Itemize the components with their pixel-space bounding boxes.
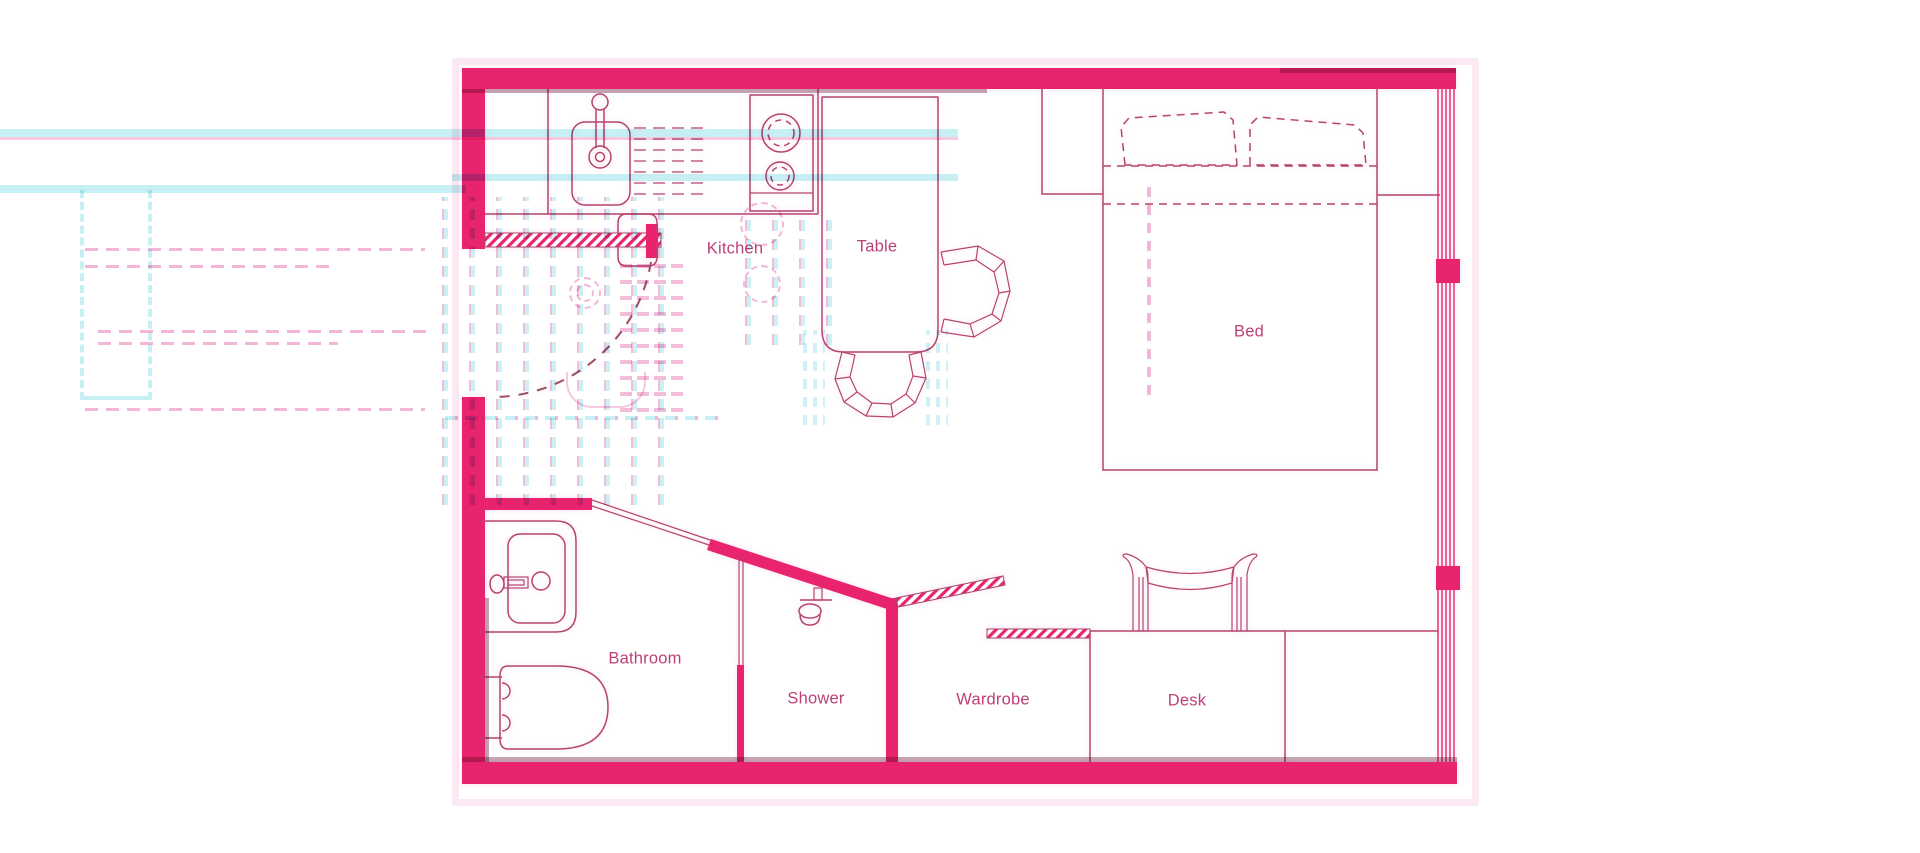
bed-icon: [1103, 88, 1377, 470]
stove-icon: [750, 95, 813, 211]
wardrobe-door-icon: [896, 576, 1005, 607]
wardrobe-door-icon: [987, 629, 1090, 638]
floor-plan-drawing: [0, 0, 1920, 853]
room-label-table: Table: [857, 238, 897, 257]
entry-door-icon: [485, 214, 661, 266]
window-wall-icon: [1436, 89, 1460, 762]
shower-head-icon: [799, 588, 832, 625]
desk-chair-icon: [1123, 554, 1257, 631]
chair-icon: [835, 352, 926, 417]
desk-icon: [1090, 631, 1438, 762]
room-label-desk: Desk: [1168, 692, 1206, 711]
door-swing-arc-icon: [497, 262, 651, 397]
nightstand-niche: [1042, 89, 1103, 194]
kitchen-counter: [485, 89, 818, 214]
dining-table-icon: [822, 97, 938, 352]
toilet-icon: [482, 666, 608, 749]
pillow-icon: [1103, 112, 1377, 166]
room-label-bathroom: Bathroom: [608, 650, 681, 669]
window-mullion: [1436, 259, 1460, 283]
outer-walls: [462, 68, 1457, 784]
room-label-shower: Shower: [787, 690, 844, 709]
window-mullion: [1436, 566, 1460, 590]
dish-rack-icon: [634, 128, 703, 194]
floor-plan-canvas: Kitchen Table Bed Bathroom Shower Wardro…: [0, 0, 1920, 853]
bathroom-sink-icon: [482, 521, 576, 632]
room-label-wardrobe: Wardrobe: [956, 691, 1029, 710]
room-label-kitchen: Kitchen: [707, 240, 763, 259]
chair-icon: [941, 246, 1010, 337]
room-label-bed: Bed: [1234, 323, 1264, 342]
bathroom-walls: [485, 498, 898, 763]
kitchen-sink-icon: [572, 94, 630, 205]
